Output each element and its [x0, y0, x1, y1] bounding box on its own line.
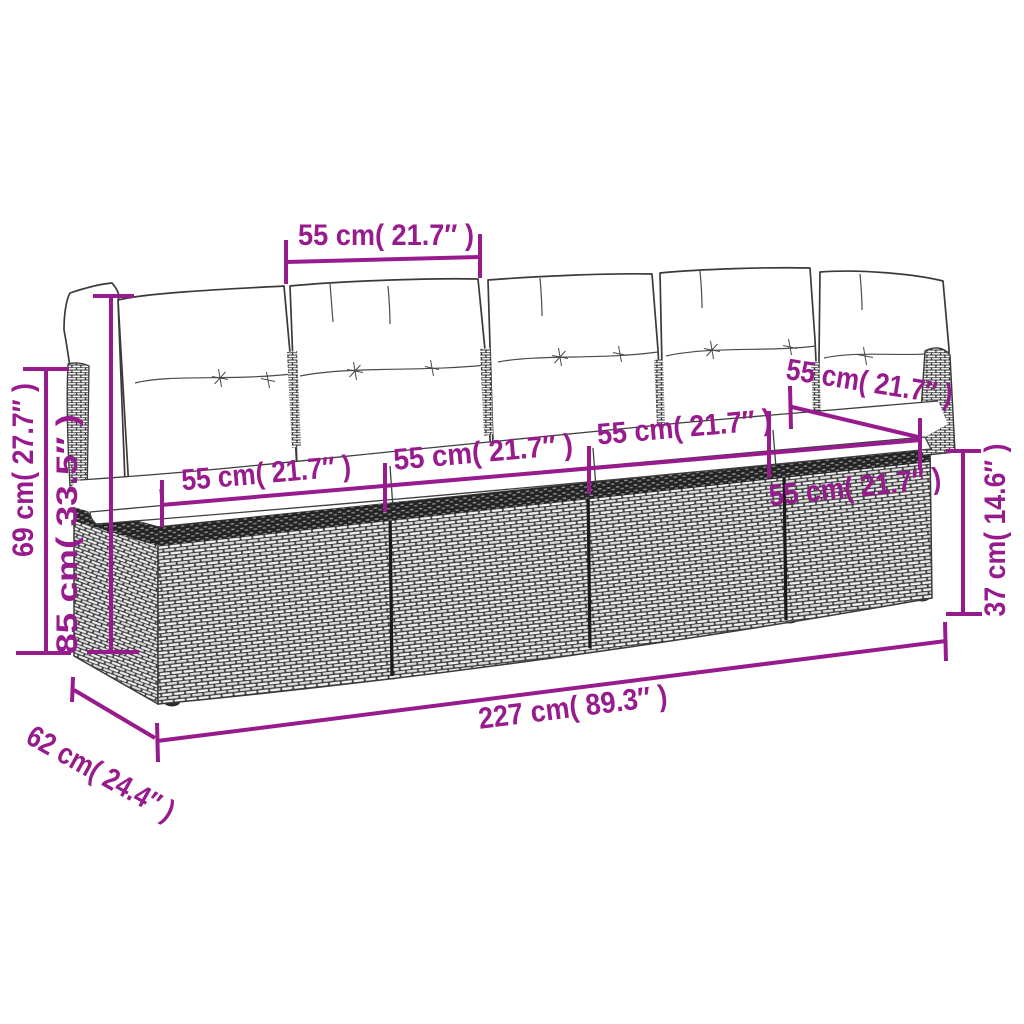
- svg-text:85 cm( 33.5″ ): 85 cm( 33.5″ ): [51, 414, 84, 654]
- svg-text:37 cm( 14.6″ ): 37 cm( 14.6″ ): [979, 444, 1012, 617]
- svg-text:69 cm( 27.7″ ): 69 cm( 27.7″ ): [7, 383, 40, 557]
- svg-text:55 cm( 21.7″ ): 55 cm( 21.7″ ): [298, 219, 474, 252]
